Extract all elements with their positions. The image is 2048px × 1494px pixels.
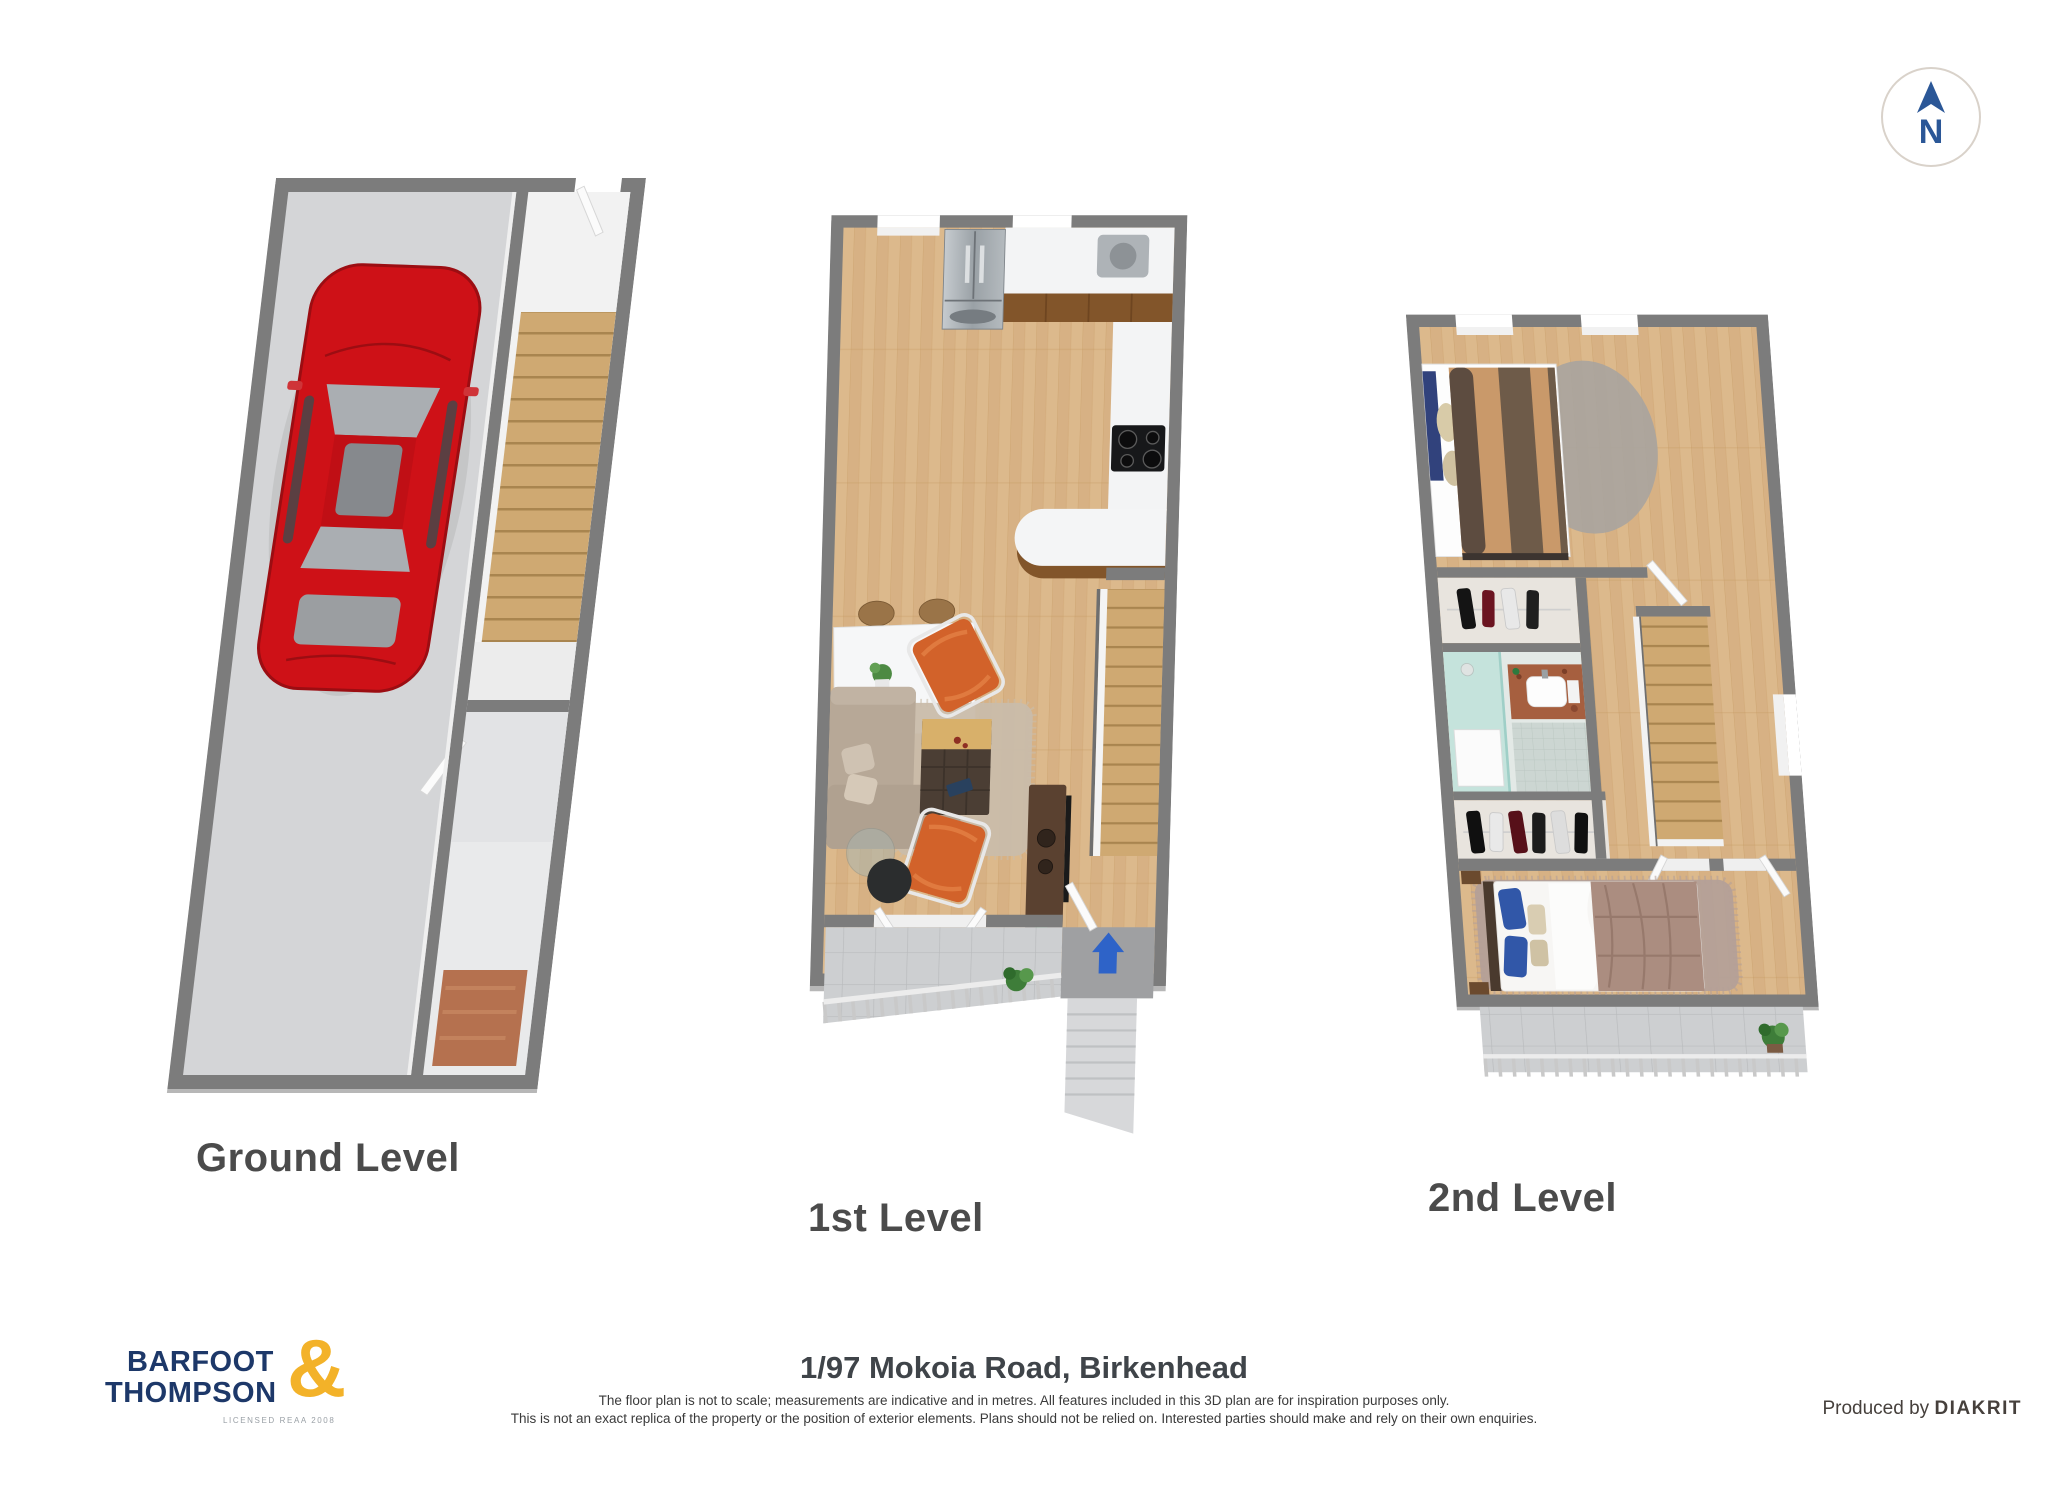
faucet [1541,670,1548,679]
bathroom [1443,652,1591,792]
disclaimer-line-2: This is not an exact replica of the prop… [0,1411,2048,1426]
property-address: 1/97 Mokoia Road, Birkenhead [0,1350,2048,1386]
nightstand [1461,871,1481,884]
table-tray [922,719,992,749]
floorplan-sheet: Ground Level 1st Level 2nd Level N BARFO… [0,0,2048,1494]
floor-plan-ground-level [167,178,646,1093]
bed [1422,364,1571,560]
interior-wall [1437,567,1648,578]
closet [1438,578,1581,643]
compass-icon: N [1881,67,1981,167]
kitchen-counter [1004,228,1175,294]
towel [1567,680,1580,703]
pillow [1527,904,1547,934]
producer-name: DIAKRIT [1934,1398,2022,1419]
label-1st-level: 1st Level [808,1196,984,1241]
pillow [1504,935,1528,978]
compass-north-letter: N [1883,113,1979,152]
car-mirror [287,381,303,391]
bed [1483,882,1705,991]
floor-plan-2nd-level [1402,262,1830,1162]
shower-head [1461,663,1474,675]
balcony [1480,1007,1808,1072]
exterior-stairs [1064,998,1137,1133]
basin [1526,677,1567,707]
pillow [1529,940,1549,966]
coffee-table [920,719,992,815]
produced-by-label: Produced by [1822,1398,1934,1419]
nightstand [1469,982,1489,994]
bedroom-2 [1461,871,1740,995]
vanity [1507,664,1585,719]
car-mirror [463,387,479,397]
floor-plan-1st-level [804,158,1189,1198]
staircase-up [1089,568,1165,856]
produced-by: Produced by DIAKRIT [1822,1398,2022,1420]
disclaimer-line-1: The floor plan is not to scale; measurem… [0,1393,2048,1408]
entry-mat [432,970,527,1066]
fridge [942,229,1005,329]
wardrobe [1454,800,1611,864]
label-2nd-level: 2nd Level [1428,1176,1617,1221]
label-ground-level: Ground Level [196,1136,460,1181]
